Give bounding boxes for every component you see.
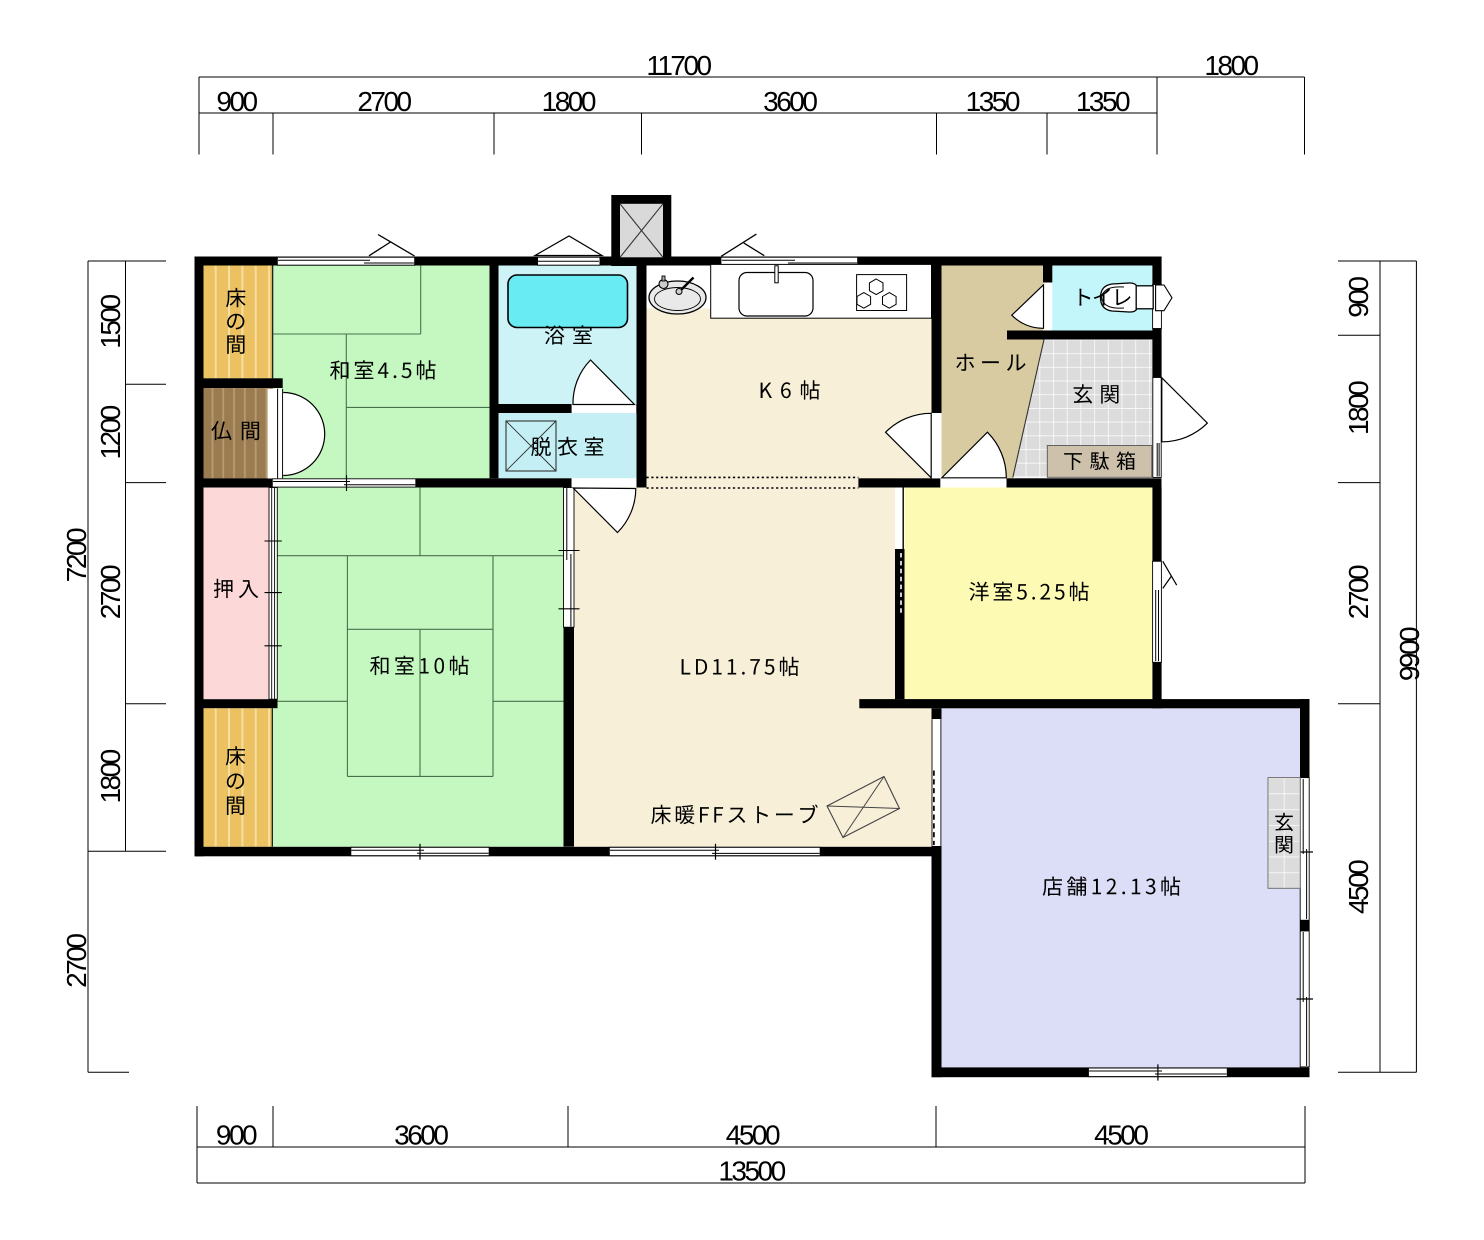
svg-text:900: 900 bbox=[1343, 277, 1374, 318]
svg-text:1800: 1800 bbox=[1204, 50, 1258, 81]
svg-text:9900: 9900 bbox=[1394, 627, 1425, 681]
svg-text:13500: 13500 bbox=[718, 1156, 785, 1187]
svg-text:900: 900 bbox=[216, 1120, 257, 1151]
svg-text:7200: 7200 bbox=[61, 528, 92, 582]
svg-text:1200: 1200 bbox=[95, 405, 126, 459]
svg-text:3600: 3600 bbox=[394, 1120, 448, 1151]
svg-text:2700: 2700 bbox=[357, 86, 411, 117]
svg-text:1350: 1350 bbox=[966, 86, 1020, 117]
svg-text:11700: 11700 bbox=[646, 50, 711, 81]
svg-text:2700: 2700 bbox=[61, 934, 92, 988]
svg-text:2700: 2700 bbox=[1343, 565, 1374, 619]
svg-text:900: 900 bbox=[216, 86, 257, 117]
svg-text:1500: 1500 bbox=[95, 295, 126, 349]
svg-text:1800: 1800 bbox=[95, 749, 126, 803]
svg-text:3600: 3600 bbox=[763, 86, 817, 117]
svg-text:4500: 4500 bbox=[1343, 860, 1374, 914]
svg-text:1800: 1800 bbox=[1343, 381, 1374, 435]
svg-text:4500: 4500 bbox=[1094, 1120, 1148, 1151]
svg-text:1350: 1350 bbox=[1076, 86, 1130, 117]
svg-text:2700: 2700 bbox=[95, 565, 126, 619]
svg-text:1800: 1800 bbox=[542, 86, 596, 117]
svg-text:4500: 4500 bbox=[726, 1120, 780, 1151]
